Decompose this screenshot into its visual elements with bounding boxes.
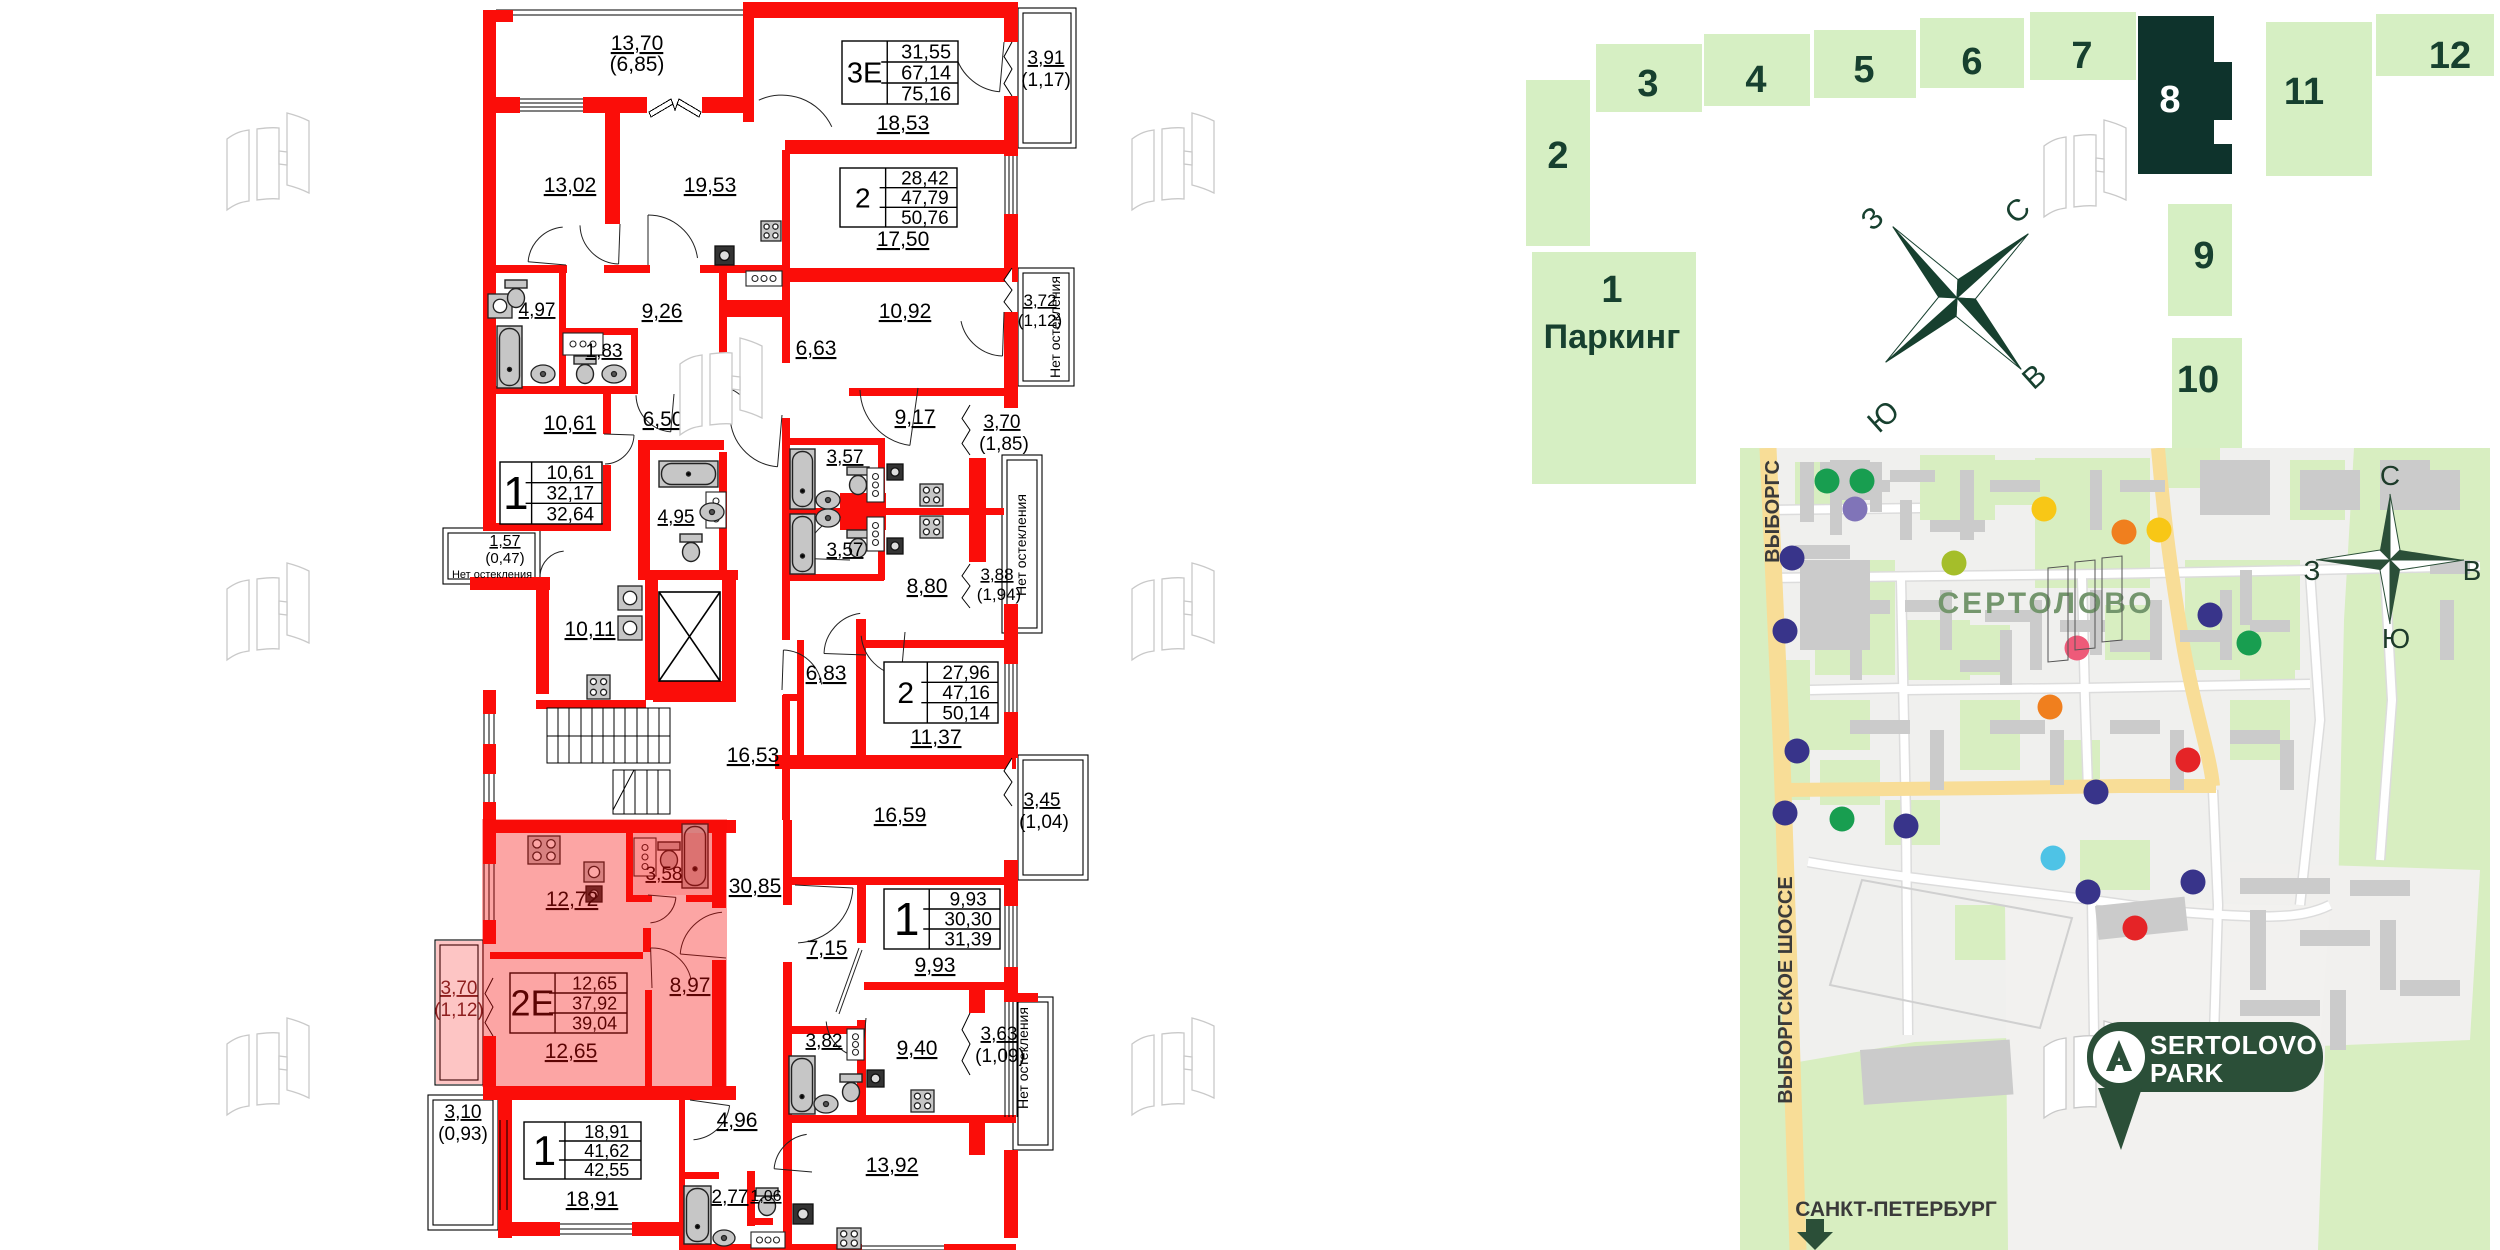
svg-text:7: 7	[2071, 35, 2092, 77]
svg-text:18,91: 18,91	[584, 1122, 629, 1142]
svg-text:32,17: 32,17	[547, 484, 595, 505]
svg-text:З: З	[2304, 555, 2321, 586]
svg-text:10: 10	[2177, 359, 2219, 401]
svg-text:5: 5	[1853, 49, 1874, 91]
svg-text:10,92: 10,92	[879, 300, 932, 323]
svg-text:31,55: 31,55	[901, 42, 951, 64]
svg-text:(6,85): (6,85)	[610, 53, 665, 76]
svg-text:4,97: 4,97	[519, 300, 556, 321]
svg-text:1: 1	[503, 467, 529, 519]
svg-text:11,37: 11,37	[911, 726, 962, 749]
svg-text:47,79: 47,79	[901, 188, 949, 209]
svg-text:(1,04): (1,04)	[1019, 812, 1069, 833]
svg-text:27,96: 27,96	[942, 663, 990, 684]
svg-text:9,93: 9,93	[915, 954, 956, 977]
svg-text:3,91: 3,91	[1028, 48, 1065, 69]
svg-text:2: 2	[855, 182, 871, 213]
svg-text:1: 1	[533, 1127, 556, 1174]
svg-text:САНКТ-ПЕТЕРБУРГ: САНКТ-ПЕТЕРБУРГ	[1795, 1198, 1997, 1221]
svg-text:30,85: 30,85	[729, 875, 782, 898]
svg-text:30,30: 30,30	[944, 910, 992, 931]
svg-text:Ю: Ю	[2382, 623, 2410, 654]
svg-text:3,82: 3,82	[806, 1031, 843, 1052]
svg-text:13,70: 13,70	[611, 32, 664, 55]
svg-text:28,42: 28,42	[901, 168, 949, 189]
svg-text:1,83: 1,83	[586, 341, 623, 362]
svg-text:75,16: 75,16	[901, 84, 951, 106]
svg-text:8,80: 8,80	[907, 575, 948, 598]
svg-text:SERTOLOVO: SERTOLOVO	[2150, 1030, 2317, 1060]
svg-text:7,15: 7,15	[807, 937, 848, 960]
svg-text:1,57: 1,57	[489, 533, 520, 550]
svg-text:9: 9	[2193, 235, 2214, 277]
svg-text:3,70: 3,70	[441, 978, 478, 999]
svg-text:18,91: 18,91	[566, 1188, 619, 1211]
svg-text:67,14: 67,14	[901, 63, 951, 85]
svg-text:9,17: 9,17	[895, 406, 936, 429]
svg-text:3,63: 3,63	[981, 1024, 1018, 1045]
svg-text:3,10: 3,10	[445, 1102, 482, 1123]
svg-text:9,26: 9,26	[642, 300, 683, 323]
svg-text:32,64: 32,64	[547, 504, 595, 525]
svg-text:Нет остекления: Нет остекления	[1013, 494, 1029, 596]
svg-text:10,11: 10,11	[565, 618, 616, 641]
svg-text:41,62: 41,62	[584, 1141, 629, 1161]
svg-text:6,83: 6,83	[806, 662, 847, 685]
svg-text:17,50: 17,50	[877, 228, 930, 251]
svg-text:(1,17): (1,17)	[1021, 70, 1071, 91]
svg-text:18,53: 18,53	[877, 112, 930, 135]
svg-text:2: 2	[1547, 135, 1568, 177]
svg-text:19,53: 19,53	[684, 174, 737, 197]
svg-text:ВЫБОРГСКОЕ ШОССЕ: ВЫБОРГСКОЕ ШОССЕ	[1775, 876, 1797, 1103]
svg-text:2: 2	[897, 677, 914, 710]
svg-text:В: В	[2463, 555, 2482, 586]
svg-text:4,95: 4,95	[658, 507, 695, 528]
svg-text:(1,85): (1,85)	[979, 434, 1029, 455]
svg-text:12: 12	[2429, 35, 2471, 77]
svg-text:(0,47): (0,47)	[485, 550, 524, 567]
svg-text:6,50: 6,50	[643, 408, 684, 431]
svg-text:13,02: 13,02	[544, 174, 597, 197]
svg-text:3,88: 3,88	[980, 565, 1013, 584]
svg-text:ВЫБОРГС: ВЫБОРГС	[1762, 460, 1784, 563]
svg-text:4: 4	[1745, 59, 1766, 101]
svg-text:10,61: 10,61	[547, 463, 595, 484]
svg-text:47,16: 47,16	[942, 683, 990, 704]
svg-text:Нет остекления: Нет остекления	[1047, 276, 1063, 378]
svg-text:16,59: 16,59	[874, 804, 927, 827]
svg-text:6: 6	[1961, 41, 1982, 83]
svg-text:4,96: 4,96	[717, 1109, 758, 1132]
svg-text:3,57: 3,57	[827, 447, 864, 468]
svg-text:1: 1	[894, 893, 920, 945]
svg-text:2,77: 2,77	[712, 1187, 749, 1208]
svg-text:9,40: 9,40	[897, 1037, 938, 1060]
svg-text:10,61: 10,61	[544, 412, 597, 435]
svg-text:Паркинг: Паркинг	[1544, 318, 1681, 356]
svg-text:50,14: 50,14	[942, 703, 990, 724]
svg-text:1,06: 1,06	[750, 1188, 781, 1205]
svg-text:9,93: 9,93	[950, 890, 987, 911]
svg-text:(1,12): (1,12)	[434, 1000, 484, 1021]
svg-text:42,55: 42,55	[584, 1160, 629, 1180]
svg-text:13,92: 13,92	[866, 1154, 919, 1177]
svg-text:16,53: 16,53	[727, 744, 780, 767]
svg-text:3,45: 3,45	[1024, 790, 1061, 811]
svg-text:С: С	[2380, 460, 2400, 491]
svg-text:3: 3	[1637, 63, 1658, 105]
svg-text:(0,93): (0,93)	[438, 1124, 488, 1145]
svg-text:50,76: 50,76	[901, 208, 949, 229]
svg-text:11: 11	[2284, 71, 2324, 113]
svg-text:3,57: 3,57	[827, 540, 864, 561]
svg-text:3,70: 3,70	[984, 412, 1021, 433]
svg-text:6,63: 6,63	[796, 337, 837, 360]
svg-text:8: 8	[2159, 79, 2180, 121]
svg-text:31,39: 31,39	[944, 930, 992, 951]
svg-text:1: 1	[1601, 269, 1622, 311]
svg-text:Нет остекления: Нет остекления	[1015, 1007, 1031, 1109]
svg-text:3Е: 3Е	[847, 58, 882, 90]
svg-text:Нет остекления: Нет остекления	[452, 569, 532, 581]
svg-text:PARK: PARK	[2150, 1058, 2224, 1088]
